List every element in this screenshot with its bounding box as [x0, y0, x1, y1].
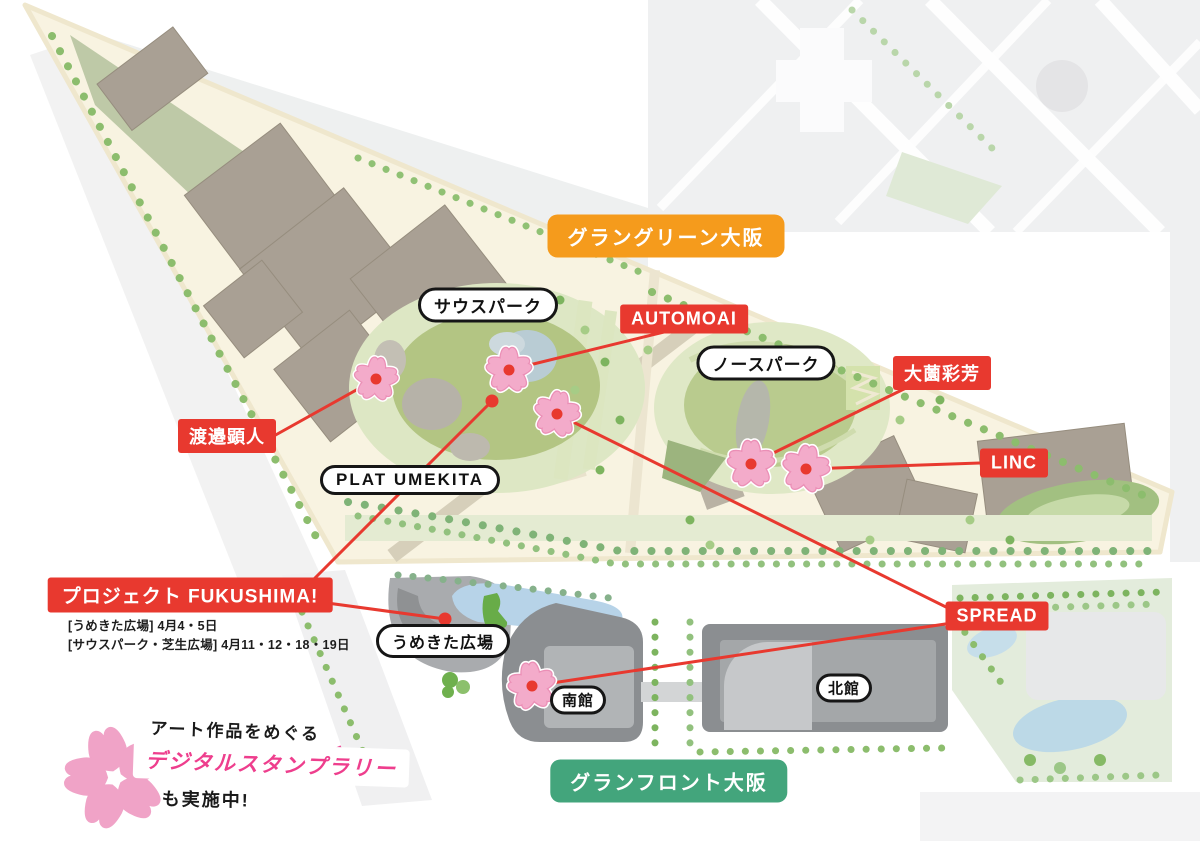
artwork-badge-spread: SPREAD	[945, 602, 1048, 631]
promo-band: デジタルスタンプラリー	[133, 740, 410, 788]
place-pill-south-park: サウスパーク	[418, 288, 558, 323]
schedule-line-2: [サウスパーク・芝生広場] 4月11・12・18・19日	[68, 636, 350, 655]
promo-line-1: アート作品をめぐる	[150, 714, 320, 745]
artwork-badge-watanabe: 渡邉顕人	[178, 419, 276, 453]
region-badge-grand-front: グランフロント大阪	[550, 760, 787, 803]
place-pill-south-building: 南館	[550, 686, 606, 715]
artwork-badge-osono: 大薗彩芳	[893, 356, 991, 390]
map-labels: グラングリーン大阪 グランフロント大阪 サウスパーク ノースパーク PLAT U…	[0, 0, 1200, 841]
place-pill-plat-umekita: PLAT UMEKITA	[320, 465, 500, 495]
artwork-badge-fukushima: プロジェクト FUKUSHIMA!	[48, 578, 333, 613]
region-badge-grand-green: グラングリーン大阪	[548, 215, 785, 258]
place-pill-north-park: ノースパーク	[696, 346, 835, 381]
schedule-line-1: [うめきた広場] 4月4・5日	[68, 617, 350, 636]
promo-line-3: も実施中!	[162, 785, 250, 813]
place-pill-umekita-plaza: うめきた広場	[376, 624, 510, 658]
place-pill-north-building: 北館	[816, 674, 872, 703]
fukushima-schedule-note: [うめきた広場] 4月4・5日 [サウスパーク・芝生広場] 4月11・12・18…	[68, 617, 350, 656]
promo-line-2: デジタルスタンプラリー	[145, 749, 398, 781]
artwork-badge-linc: LINC	[980, 449, 1048, 478]
umekita-art-map: グラングリーン大阪 グランフロント大阪 サウスパーク ノースパーク PLAT U…	[0, 0, 1200, 841]
artwork-badge-automoai: AUTOMOAI	[620, 305, 748, 334]
